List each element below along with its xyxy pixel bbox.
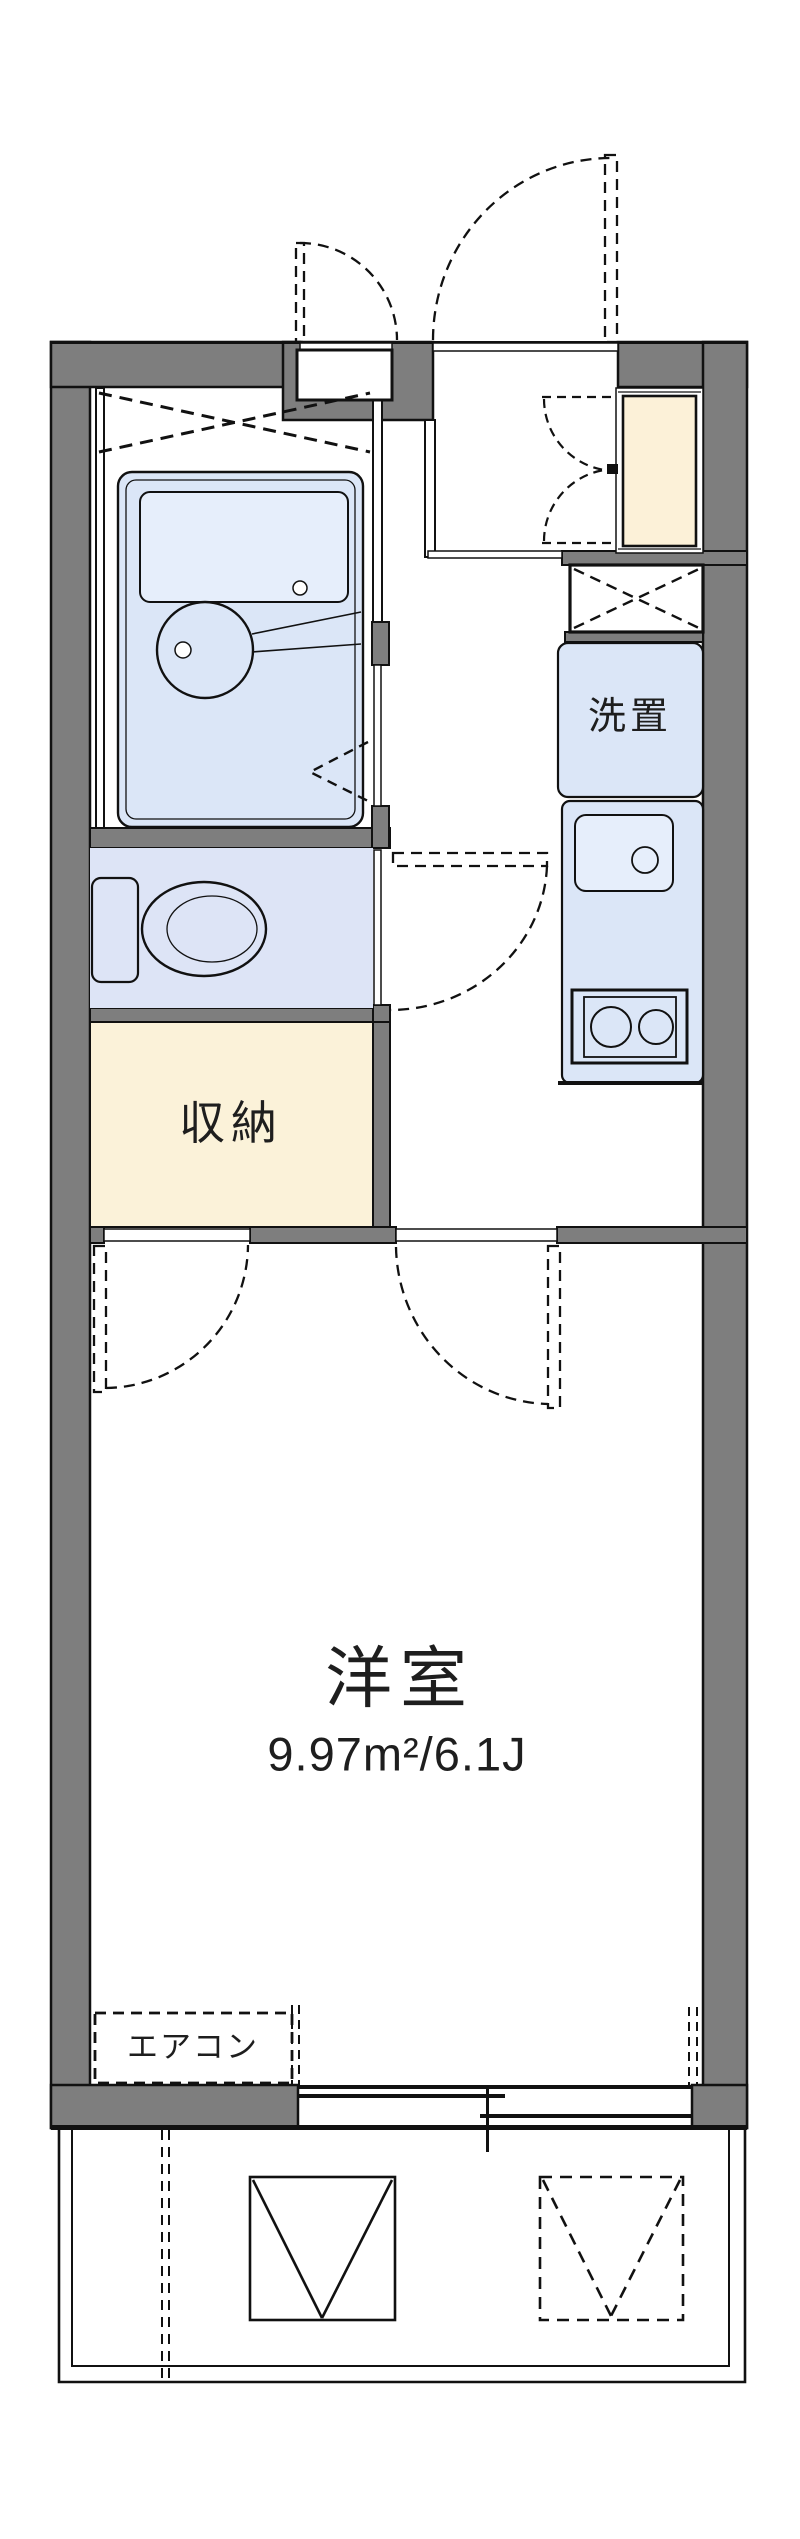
aircon-label: エアコン (127, 2032, 259, 2063)
toilet-door-jamb-bottom (373, 1005, 390, 1022)
shoe-cabinet (616, 388, 703, 553)
toilet (92, 878, 266, 982)
floor-plan-drawing (0, 0, 800, 2539)
wall-bath-toilet (90, 828, 390, 848)
storage-label: 収納 (179, 1100, 283, 1146)
entrance-door-arc (433, 158, 611, 340)
toilet-door-arc (390, 866, 547, 1010)
closet-opening-sill (104, 1229, 250, 1241)
room-door-sill (396, 1229, 557, 1241)
bathroom (99, 393, 370, 827)
window-center-stile (486, 2085, 489, 2152)
wall-bottom-left (51, 2085, 298, 2128)
washbasin-drain (175, 642, 191, 658)
toilet-door-opening (374, 850, 381, 1005)
closet-door-leaf (94, 1246, 106, 1392)
room-door-leaf (548, 1246, 560, 1408)
aircon-pipe-marks (292, 2005, 697, 2085)
bathroom-wall-left (96, 388, 104, 828)
balcony-hatch-solid (250, 2177, 395, 2320)
refrigerator-space (570, 565, 703, 632)
laundry-space-label: 洗置 (588, 698, 672, 736)
bathroom-wall-right (373, 388, 382, 622)
meterbox-door-arc (300, 243, 397, 340)
entrance-door-leaf (605, 155, 617, 342)
balcony-rail-inner (72, 2128, 729, 2366)
kitchen-sink (575, 815, 673, 891)
outer-edge-bottom (51, 2125, 747, 2130)
wall-storage-right (373, 1022, 390, 1227)
wall-bottom-corner (692, 2085, 747, 2128)
washbasin-bowl (157, 602, 253, 698)
entrance-sill (433, 343, 618, 351)
counter-end-line (558, 1081, 703, 1085)
room-name-label: 洋室 (325, 1646, 475, 1713)
shoe-cabinet-body (623, 396, 696, 546)
kitchen-counter (558, 801, 703, 1085)
room-size-label: 9.97m²/6.1J (267, 1731, 526, 1778)
room-door-arc (396, 1247, 548, 1404)
genkan-step-stub (425, 420, 435, 557)
wall-toilet-storage (90, 1008, 390, 1022)
toilet-tank (92, 878, 138, 982)
genkan-step-edge (428, 551, 562, 558)
room-wall-seg-mid (250, 1227, 396, 1243)
toilet-door-leaf (393, 853, 547, 866)
shoe-cabinet-doors (542, 397, 616, 543)
bathroom-x-mark (99, 393, 370, 452)
bathtub-basin (140, 492, 348, 602)
window (298, 2085, 692, 2152)
closet-door-arc (106, 1245, 248, 1388)
floor-plan: 洗置 収納 洋室 9.97m²/6.1J エアコン (0, 0, 800, 2539)
wall-top-left (51, 342, 300, 387)
bathtub-drain (293, 581, 307, 595)
outer-edge-top (51, 341, 747, 344)
wall-left (51, 342, 90, 2128)
bath-door-jamb-bottom (372, 806, 389, 848)
balcony (59, 2128, 745, 2382)
stove (572, 990, 687, 1063)
room-wall-seg-right (557, 1227, 747, 1243)
balcony-hatch-dashed (540, 2177, 683, 2320)
bath-door-jamb-top (372, 622, 389, 665)
bathroom-door-opening (374, 665, 381, 806)
shoe-door-handle (607, 464, 618, 474)
meter-box (297, 350, 392, 400)
meterbox-door-leaf (296, 243, 304, 342)
room-wall-seg-left (90, 1227, 104, 1243)
balcony-divider (162, 2130, 169, 2380)
